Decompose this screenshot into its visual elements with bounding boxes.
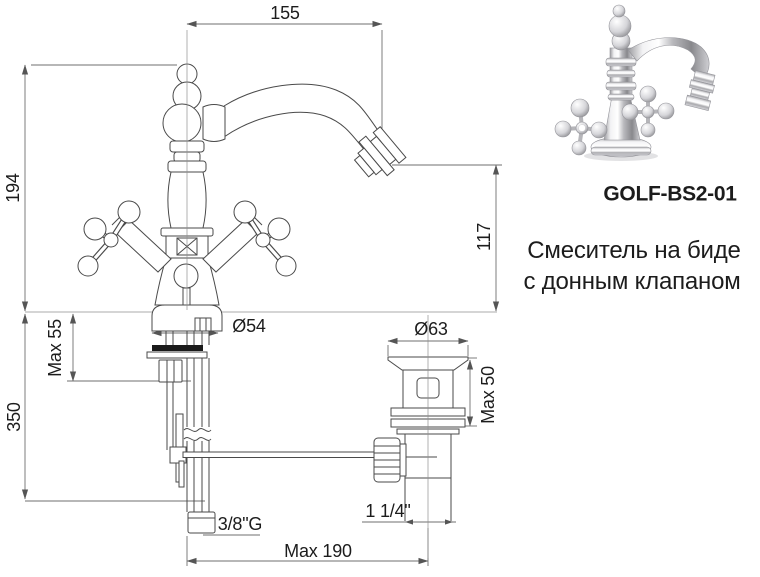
drain-valve-line-drawing bbox=[374, 357, 468, 521]
product-description-line2: с донным клапаном bbox=[523, 270, 740, 294]
catalog-page: { "title_block": { "product_code": "GOLF… bbox=[0, 0, 760, 577]
product-description-line1: Смеситель на биде bbox=[527, 239, 740, 263]
faucet-line-drawing bbox=[78, 64, 407, 533]
product-code: GOLF-BS2-01 bbox=[603, 184, 736, 205]
dim-supply-thread-label: 3/8"G bbox=[218, 515, 262, 533]
dim-max-deck-label: Max 55 bbox=[46, 319, 64, 377]
dim-drain-flange-label: Ø63 bbox=[414, 320, 447, 338]
dim-drain-max-deck-label: Max 50 bbox=[479, 366, 497, 424]
dim-supply-length-label: 350 bbox=[5, 402, 23, 431]
dim-drain-thread-label: 1 1/4" bbox=[365, 502, 410, 520]
dimension-lines bbox=[25, 24, 502, 566]
dim-spout-reach-label: 155 bbox=[270, 4, 299, 22]
dim-base-diameter-label: Ø54 bbox=[232, 317, 265, 335]
dim-outlet-height-label: 117 bbox=[475, 223, 493, 251]
dim-max-center-label: Max 190 bbox=[284, 542, 352, 560]
product-photo bbox=[555, 5, 717, 161]
dim-body-height-label: 194 bbox=[4, 173, 22, 202]
aerator bbox=[347, 125, 407, 185]
